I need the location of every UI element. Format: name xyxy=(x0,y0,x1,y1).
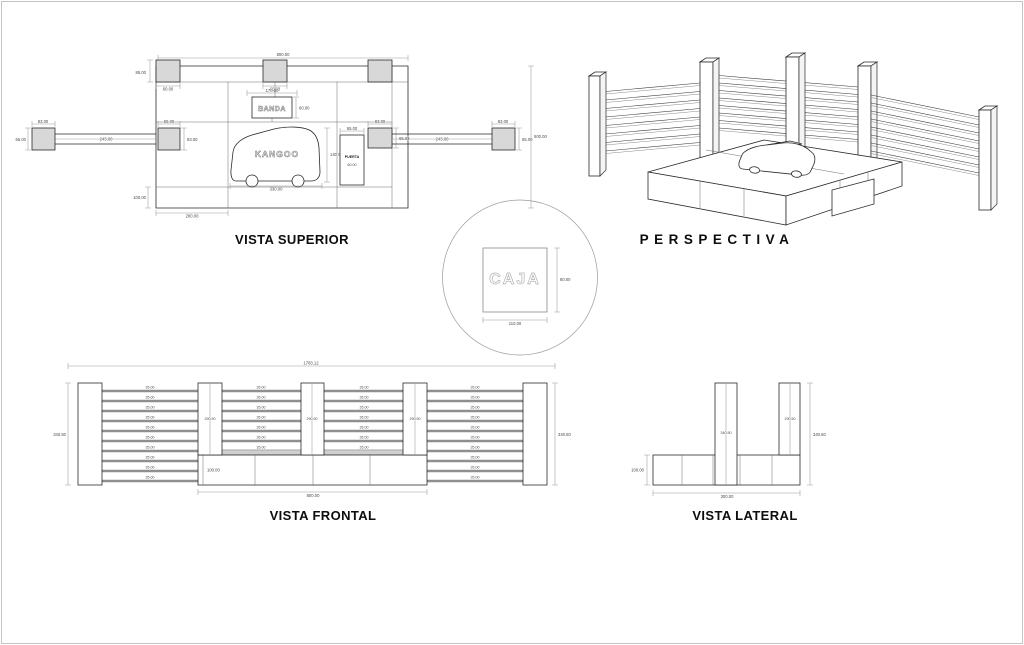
dim-slat-gap: 35.00 xyxy=(360,406,369,410)
dim-height-right: 340.50 xyxy=(558,432,571,437)
dim-slat-gap: 35.00 xyxy=(257,426,266,430)
dim-caja-height: 80.00 xyxy=(560,277,571,282)
dim-slat-gap: 35.00 xyxy=(146,476,155,480)
perspective-pillar xyxy=(589,72,606,176)
column-floor-right xyxy=(368,128,392,148)
frontal-pillar-outer-left xyxy=(78,383,102,485)
dim-slat-gap: 35.00 xyxy=(360,416,369,420)
dim-depth: 500.00 xyxy=(534,134,547,139)
dim-bottom-height: 100.00 xyxy=(133,195,146,200)
dim-slat-gap: 35.00 xyxy=(471,476,480,480)
dim-banda-height: 60.00 xyxy=(299,106,310,111)
dim-slat-gap: 35.00 xyxy=(146,386,155,390)
cad-drawing-canvas: 800.00 85.00 60.00 60.00 170.00 BANDA 60… xyxy=(0,0,1024,645)
dim-banda-width: 170.00 xyxy=(266,88,279,93)
dim-in-left-height: 83.00 xyxy=(187,137,198,142)
dim-slat-gap: 35.00 xyxy=(471,446,480,450)
van-wheel-front xyxy=(246,175,258,187)
dim-left-arm: 243.00 xyxy=(100,137,113,142)
back-wall-louvers xyxy=(713,75,858,140)
dim-puerta-height: 60.00 xyxy=(348,163,357,167)
dim-pillar-height: 290.50 xyxy=(410,417,421,421)
vista-lateral-title: VISTA LATERAL xyxy=(692,508,797,523)
dim-line xyxy=(644,455,650,485)
column-floor-left xyxy=(158,128,180,150)
dim-slat-gap: 35.00 xyxy=(146,426,155,430)
dim-frontal-total-width: 1783.12 xyxy=(303,361,319,366)
vista-frontal-view: 1783.12 100.00 290.50 290.50 290.50 35.0… xyxy=(53,361,571,523)
dim-right-arm: 243.00 xyxy=(436,137,449,142)
dim-in-left-width: 65.00 xyxy=(164,119,175,124)
perspective-pillar xyxy=(979,106,997,210)
dim-slat-gap: 35.00 xyxy=(146,456,155,460)
puerta-label: PUERTA xyxy=(345,155,360,159)
dim-out-left-width: 83.00 xyxy=(38,119,49,124)
column-outer-right xyxy=(492,128,515,150)
banda-label: BANDA xyxy=(258,106,286,113)
perspectiva-view: PERSPECTIVA xyxy=(589,53,997,247)
dim-slat-gap: 35.00 xyxy=(471,456,480,460)
dim-total-width: 800.00 xyxy=(277,52,290,57)
dim-slat-gap: 35.00 xyxy=(360,386,369,390)
column-outer-left xyxy=(32,128,55,150)
dim-slat-gap: 35.00 xyxy=(257,406,266,410)
dim-slat-gap: 35.00 xyxy=(257,396,266,400)
dim-caja-width: 110.00 xyxy=(509,321,522,326)
dim-slat-gap: 35.00 xyxy=(146,396,155,400)
dim-out-right-width: 83.00 xyxy=(498,119,509,124)
column-top-left xyxy=(156,60,180,82)
caja-detail-view: CAJA 80.00 110.00 xyxy=(443,200,598,355)
dim-platform-width: 800.00 xyxy=(307,493,320,498)
dim-short-pillar: 290.50 xyxy=(785,417,796,421)
dim-pillar-height: 290.50 xyxy=(205,417,216,421)
column-top-right xyxy=(368,60,392,82)
dim-slat-gap: 35.00 xyxy=(146,416,155,420)
dim-slat-gap: 35.00 xyxy=(471,426,480,430)
kangoo-label: KANGOO xyxy=(255,149,299,159)
back-wall-louvers-shadow xyxy=(713,78,858,143)
dim-slat-gap: 35.00 xyxy=(146,466,155,470)
dim-platform-height: 100.00 xyxy=(207,468,220,473)
dim-slat-gap: 35.00 xyxy=(471,466,480,470)
dim-lateral-overall-height: 340.50 xyxy=(813,432,826,437)
frontal-platform xyxy=(198,455,427,485)
dim-in-right-height: 65.00 xyxy=(399,136,410,141)
dim-slat-gap: 35.00 xyxy=(471,396,480,400)
vista-superior-view: 800.00 85.00 60.00 60.00 170.00 BANDA 60… xyxy=(16,52,548,247)
dim-slat-gap: 35.00 xyxy=(257,446,266,450)
dim-out-right-height: 65.00 xyxy=(522,137,533,142)
dim-kangoo-length: 330.00 xyxy=(270,187,283,192)
dim-slat-gap: 35.00 xyxy=(146,446,155,450)
dim-slat-gap: 35.00 xyxy=(257,386,266,390)
dim-bottom-width: 200.00 xyxy=(186,214,199,219)
frontal-pillar-outer-right xyxy=(523,383,547,485)
dim-slat-gap: 35.00 xyxy=(257,416,266,420)
gray-slat-bay-2 xyxy=(222,450,301,455)
dim-line xyxy=(147,60,153,82)
dim-height-left: 340.50 xyxy=(53,432,66,437)
dim-slat-gap: 35.00 xyxy=(146,436,155,440)
dim-slat-gap: 35.00 xyxy=(360,446,369,450)
dim-slat-gap: 35.00 xyxy=(471,436,480,440)
vista-lateral-view: 340.50 290.50 100.00 340.50 300.00 VISTA… xyxy=(631,383,826,523)
puerta-box xyxy=(340,135,364,185)
caja-label: CAJA xyxy=(489,271,541,288)
drawing-sheet: 800.00 85.00 60.00 60.00 170.00 BANDA 60… xyxy=(0,0,1024,645)
dim-slat-gap: 35.00 xyxy=(471,406,480,410)
dim-strip-col-height: 85.00 xyxy=(136,70,147,75)
dim-puerta-width: 65.00 xyxy=(347,126,358,131)
perspectiva-title: PERSPECTIVA xyxy=(640,232,795,247)
dim-slat-gap: 35.00 xyxy=(471,416,480,420)
vista-superior-title: VISTA SUPERIOR xyxy=(235,232,349,247)
dim-lateral-platform-width: 300.00 xyxy=(721,494,734,499)
dim-slat-gap: 35.00 xyxy=(146,406,155,410)
dim-strip-col-width: 60.00 xyxy=(163,87,174,92)
dim-slat-gap: 35.00 xyxy=(471,386,480,390)
dim-lateral-platform-height: 100.00 xyxy=(631,468,644,473)
vista-frontal-title: VISTA FRONTAL xyxy=(270,508,377,523)
dim-slat-gap: 35.00 xyxy=(360,436,369,440)
column-top-center xyxy=(263,60,287,82)
dim-slat-gap: 35.00 xyxy=(360,426,369,430)
dim-out-left-height: 65.00 xyxy=(16,137,27,142)
dim-slat-gap: 35.00 xyxy=(257,436,266,440)
dim-slat-gap: 35.00 xyxy=(360,396,369,400)
van-wheel-rear xyxy=(292,175,304,187)
gray-slat-bay-3 xyxy=(324,450,403,455)
dim-in-right-width: 83.00 xyxy=(375,119,386,124)
dim-pillar-height: 290.50 xyxy=(307,417,318,421)
slats-bay-3 xyxy=(324,391,403,451)
slats-bay-2 xyxy=(222,391,301,451)
dim-tall-pillar: 340.50 xyxy=(721,431,732,435)
